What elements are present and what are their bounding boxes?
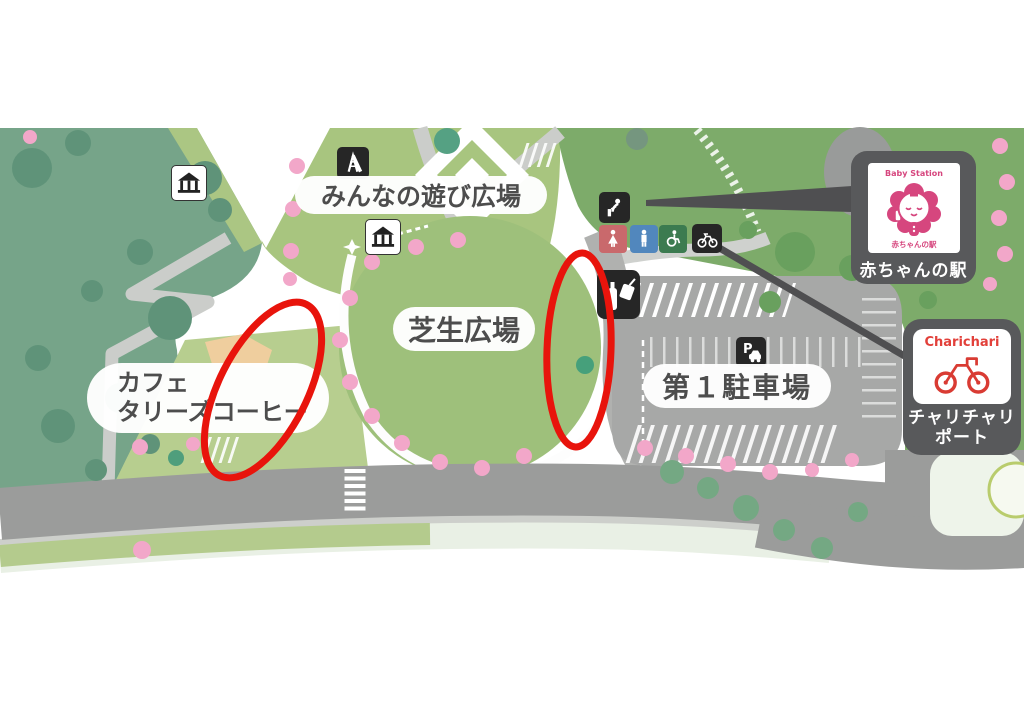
- baby-station-logo-top-text: Baby Station: [885, 169, 943, 178]
- map-terrain: [0, 0, 1024, 709]
- baby-station-label: 赤ちゃんの駅: [851, 256, 976, 281]
- label-parking-lot: 第１駐車場: [643, 364, 831, 408]
- bicycle-parking-icon: [692, 224, 722, 253]
- charichari-bicycle-icon: [913, 350, 1011, 398]
- label-lawn-plaza: 芝生広場: [393, 307, 535, 351]
- toilet-women-icon: [599, 225, 627, 253]
- cafe-line2: タリーズコーヒー: [117, 398, 308, 427]
- charichari-badge: Charichari チャリチャリ ポート: [903, 319, 1021, 455]
- charichari-label-line2: ポート: [903, 428, 1021, 448]
- charichari-label-line1: チャリチャリ: [903, 408, 1021, 428]
- toilet-men-icon: [630, 225, 658, 253]
- baby-station-badge: Baby Station 赤ちゃんの駅 赤ちゃんの駅: [851, 151, 976, 284]
- baby-station-logo-bottom-text: 赤ちゃんの駅: [891, 239, 936, 249]
- accessible-toilet-icon: [659, 225, 687, 253]
- charichari-brand-text: Charichari: [913, 335, 1011, 350]
- parking-icon: P: [736, 337, 766, 367]
- lawn-plaza-text: 芝生広場: [408, 309, 520, 349]
- baby-station-logo: Baby Station 赤ちゃんの駅: [868, 163, 960, 253]
- parking-lot-text: 第１駐車場: [662, 366, 812, 406]
- gazebo-icon-lower: [365, 219, 401, 255]
- charichari-card: Charichari: [913, 329, 1011, 404]
- cafe-line1: カフェ: [117, 369, 308, 398]
- park-map: P みんなの遊び広場 芝生広場 カフェ タリーズコーヒー 第１駐車場 Baby …: [0, 0, 1024, 709]
- label-play-plaza: みんなの遊び広場: [295, 176, 547, 214]
- drinking-fountain-icon: [599, 192, 630, 223]
- vending-machine-icon: [597, 270, 640, 319]
- play-plaza-text: みんなの遊び広場: [321, 177, 521, 213]
- playground-slide-icon: [337, 147, 369, 179]
- gazebo-icon-upper: [171, 165, 207, 201]
- label-cafe: カフェ タリーズコーヒー: [87, 363, 329, 433]
